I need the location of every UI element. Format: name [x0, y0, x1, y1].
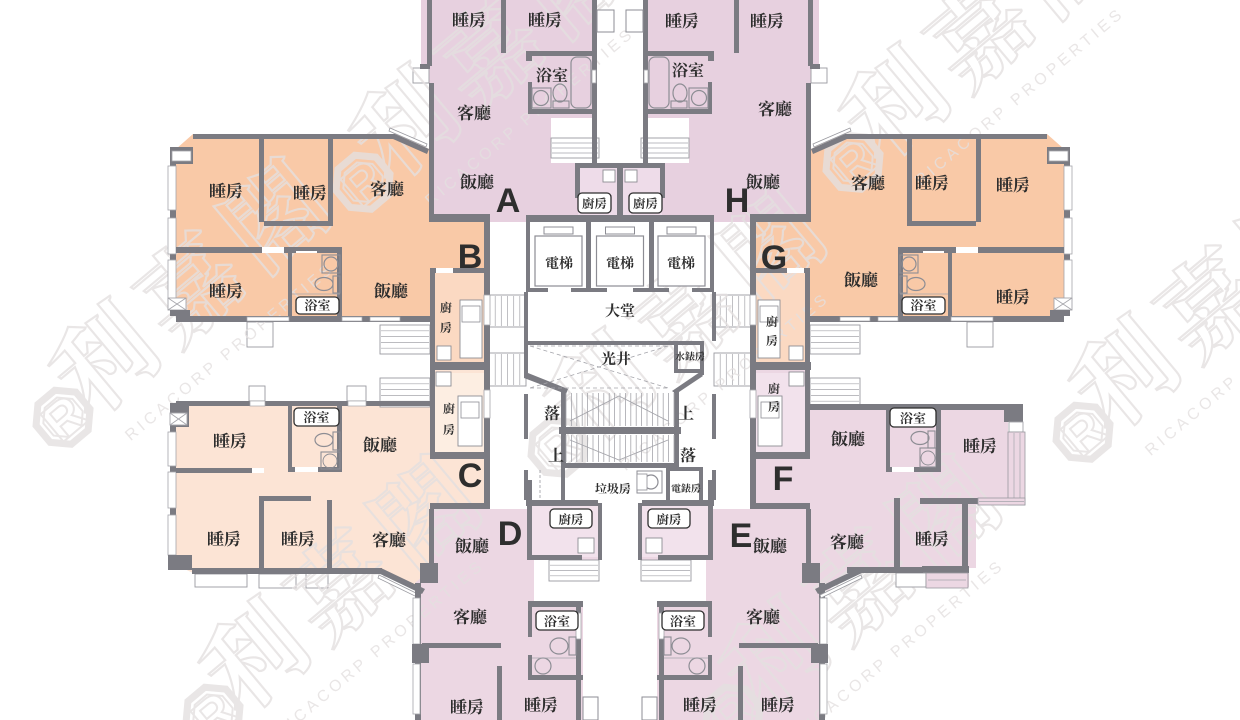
svg-text:B: B [458, 238, 483, 276]
svg-text:D: D [498, 515, 523, 553]
svg-text:C: C [458, 457, 483, 495]
svg-text:H: H [725, 182, 750, 220]
svg-text:G: G [761, 239, 787, 277]
svg-text:F: F [773, 460, 794, 498]
svg-text:A: A [496, 182, 521, 220]
svg-text:R: R [31, 384, 97, 453]
svg-text:R: R [1051, 399, 1117, 468]
svg-text:E: E [730, 517, 753, 555]
